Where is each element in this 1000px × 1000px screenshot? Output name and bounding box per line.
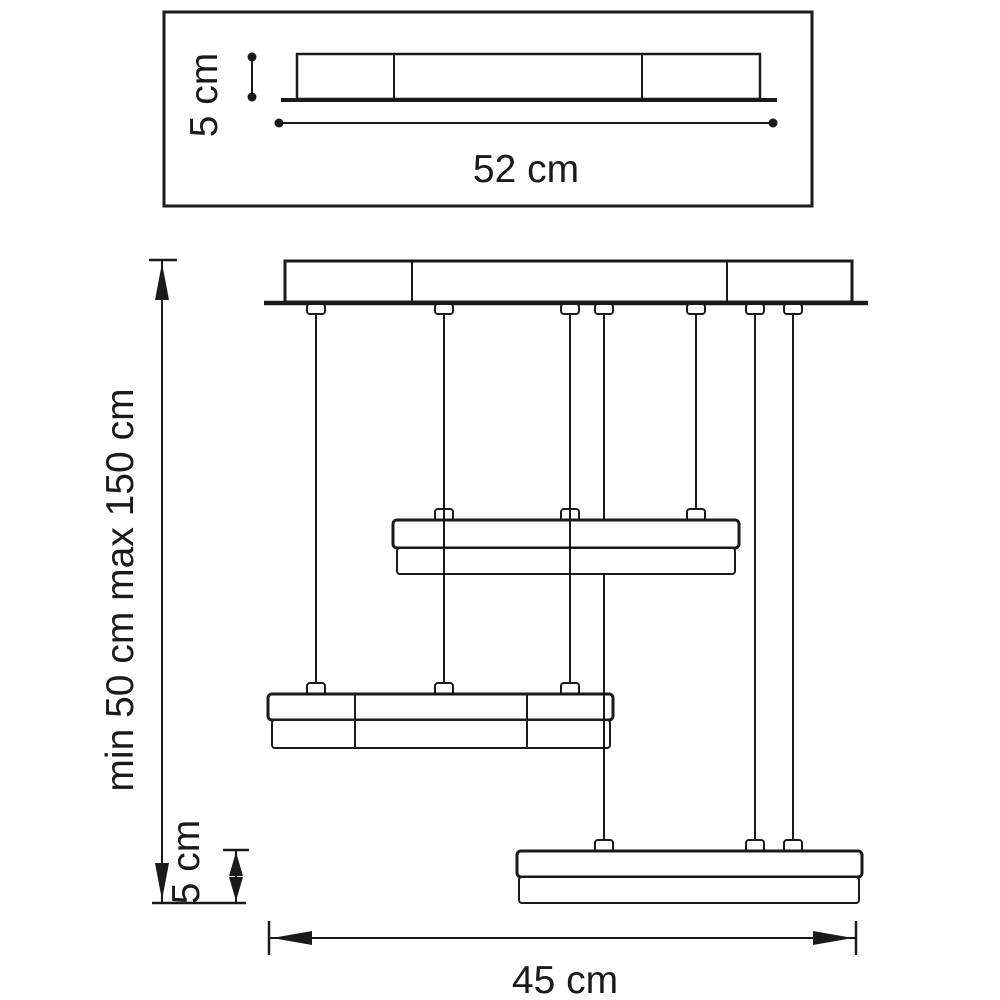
overall-width-label: 45 cm (512, 959, 618, 1000)
arrow-down (229, 877, 243, 901)
diagram-canvas: 5 cm 52 cm (0, 0, 1000, 1000)
ceiling-canopy (264, 261, 868, 314)
suspension-wires (316, 314, 793, 840)
canopy-width-dimension: 52 cm (275, 119, 778, 192)
height-dimension: min 50 cm max 150 cm (99, 260, 246, 903)
wire-hanger (746, 304, 764, 314)
dimension-dot (248, 53, 257, 62)
wire-hanger (307, 304, 325, 314)
wire-hanger (561, 304, 579, 314)
canopy-height-label: 5 cm (183, 53, 226, 138)
bar-body (517, 851, 862, 877)
wire-hanger (595, 304, 613, 314)
overall-width-dimension: 45 cm (269, 921, 856, 1000)
dimension-dot (275, 119, 284, 128)
bar-body (268, 694, 613, 720)
wire-hanger (687, 304, 705, 314)
bar-height-label: 5 cm (165, 820, 208, 905)
canopy-width-label: 52 cm (473, 148, 579, 191)
arrow-up (155, 263, 169, 300)
side-view: min 50 cm max 150 cm 5 cm 45 cm (99, 260, 868, 1000)
top-view-panel: 5 cm 52 cm (164, 12, 812, 206)
wire-hanger (435, 304, 453, 314)
left-light-bar (268, 683, 613, 748)
canopy-height-dimension: 5 cm (183, 53, 257, 138)
bar-diffuser (397, 548, 735, 574)
pendant-dimension-diagram: 5 cm 52 cm (0, 0, 1000, 1000)
canopy-top-view (281, 54, 777, 100)
wire-hanger (784, 304, 802, 314)
bar-diffuser (519, 877, 859, 903)
arrow-up (229, 852, 243, 876)
canopy-profile (297, 54, 760, 99)
dimension-dot (248, 93, 257, 102)
height-dimension-label: min 50 cm max 150 cm (99, 388, 142, 791)
canopy-hangers (307, 304, 802, 314)
arrow-right (813, 931, 853, 945)
canopy-body (285, 261, 852, 302)
dimension-dot (769, 119, 778, 128)
arrow-left (272, 931, 312, 945)
bar-diffuser (272, 720, 610, 748)
bottom-light-bar (517, 840, 862, 903)
bar-height-dimension: 5 cm (165, 820, 249, 905)
